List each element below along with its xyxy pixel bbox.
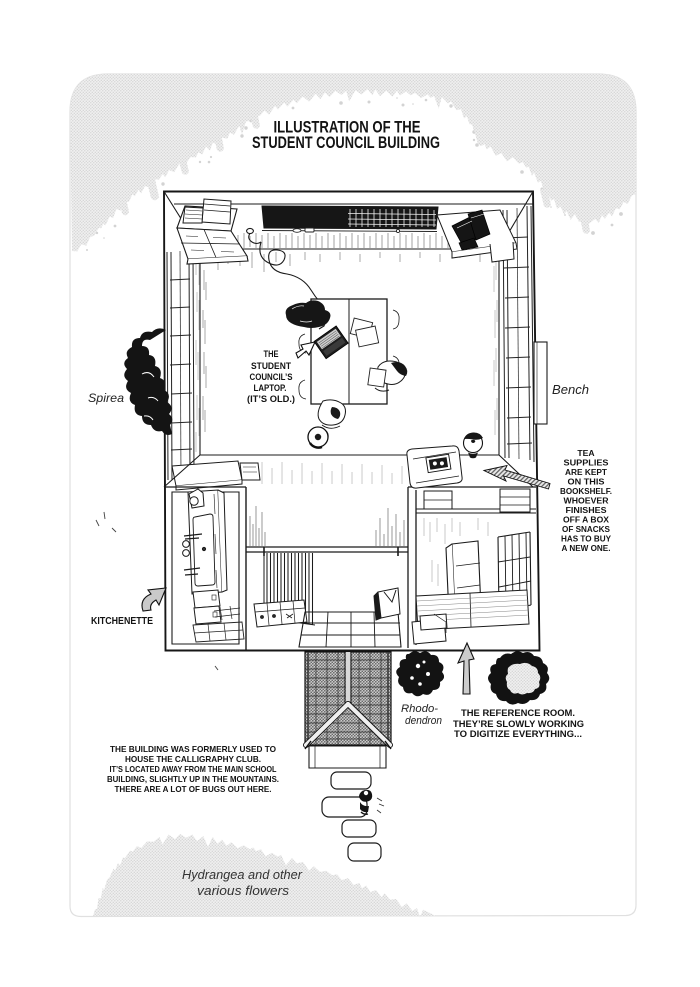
svg-text:TO DIGITIZE EVERYTHING...: TO DIGITIZE EVERYTHING... (454, 729, 582, 739)
svg-text:STUDENT COUNCIL BUILDING: STUDENT COUNCIL BUILDING (252, 134, 440, 152)
svg-text:Rhodo-: Rhodo- (401, 703, 438, 715)
svg-text:OF SNACKS: OF SNACKS (562, 524, 610, 534)
svg-text:THE: THE (264, 349, 279, 360)
svg-text:COUNCIL’S: COUNCIL’S (250, 372, 293, 383)
svg-text:dendron: dendron (405, 715, 442, 727)
svg-text:HOUSE THE CALLIGRAPHY CLUB.: HOUSE THE CALLIGRAPHY CLUB. (125, 754, 261, 764)
svg-text:(IT’S OLD.): (IT’S OLD.) (247, 394, 295, 405)
svg-text:WHOEVER: WHOEVER (564, 496, 610, 506)
svg-text:TEA: TEA (577, 448, 594, 458)
svg-text:BOOKSHELF.: BOOKSHELF. (560, 486, 612, 496)
svg-text:SUPPLIES: SUPPLIES (564, 458, 609, 468)
svg-text:LAPTOP.: LAPTOP. (254, 383, 287, 394)
svg-text:ON THIS: ON THIS (568, 477, 605, 487)
svg-text:THE REFERENCE ROOM.: THE REFERENCE ROOM. (461, 708, 575, 718)
svg-text:THE BUILDING WAS FORMERLY USED: THE BUILDING WAS FORMERLY USED TO (110, 744, 277, 754)
svg-text:KITCHENETTE: KITCHENETTE (91, 615, 153, 627)
svg-text:Bench: Bench (552, 383, 589, 397)
svg-text:ARE KEPT: ARE KEPT (565, 467, 608, 477)
svg-text:Hydrangea and other: Hydrangea and other (182, 867, 303, 882)
svg-text:STUDENT: STUDENT (251, 361, 291, 372)
svg-text:BUILDING, SLIGHTLY UP IN THE M: BUILDING, SLIGHTLY UP IN THE MOUNTAINS. (107, 774, 279, 784)
svg-text:A NEW ONE.: A NEW ONE. (562, 543, 611, 553)
svg-text:THERE ARE A LOT OF BUGS OUT HE: THERE ARE A LOT OF BUGS OUT HERE. (115, 784, 272, 794)
svg-text:HAS TO BUY: HAS TO BUY (561, 534, 611, 544)
svg-text:FINISHES: FINISHES (566, 505, 607, 515)
svg-text:THEY’RE SLOWLY WORKING: THEY’RE SLOWLY WORKING (453, 719, 584, 729)
svg-text:IT’S LOCATED AWAY FROM THE MAI: IT’S LOCATED AWAY FROM THE MAIN SCHOOL (110, 764, 277, 774)
svg-text:OFF A BOX: OFF A BOX (563, 515, 609, 525)
svg-text:Spirea: Spirea (88, 391, 124, 405)
svg-text:various flowers: various flowers (197, 883, 290, 898)
